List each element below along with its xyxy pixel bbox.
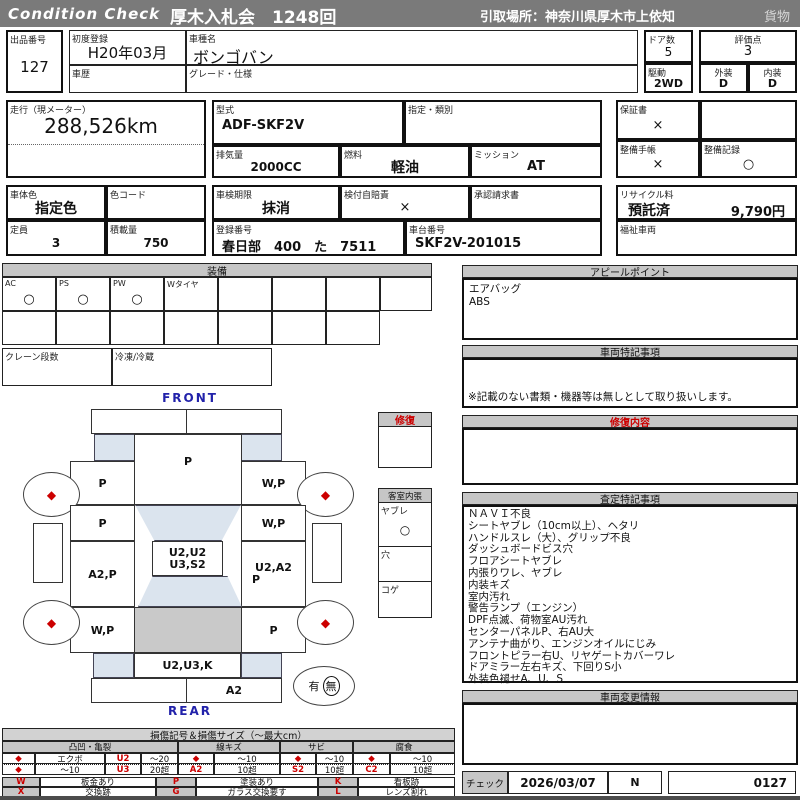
- pickup-location: 引取場所：神奈川県厚木市上依知: [480, 6, 675, 25]
- category-badge: 貨物: [764, 6, 790, 25]
- assessment-line: シートヤブレ（10cm以上）、ヘタリ: [468, 521, 792, 533]
- equipment-mark-ps: ○: [57, 289, 109, 310]
- maintenance-record-cell: 整備記録 ○: [700, 140, 797, 178]
- check-number-cell: 0127: [668, 771, 796, 794]
- cabin-burn-cell: コゲ: [379, 582, 431, 618]
- legend-code-u3: U3: [105, 764, 141, 775]
- diamond-icon: ◆: [2, 764, 35, 775]
- history-cell: 車歴: [69, 65, 186, 93]
- equipment-header: 装備: [2, 263, 432, 277]
- legend-code-u2: U2: [105, 753, 141, 764]
- equipment-cell-empty: [56, 311, 110, 345]
- repair-content-box: [462, 428, 798, 485]
- drive-type: 2WD: [646, 75, 691, 91]
- displacement-cell: 排気量 2000CC: [212, 145, 340, 178]
- score-cell: 評価点 3: [699, 30, 797, 63]
- equipment-mark-pw: ○: [111, 289, 163, 310]
- rear-label: REAR: [150, 704, 230, 718]
- wheel-mark-icon: ◆: [47, 488, 56, 502]
- equipment-cell-empty: [164, 311, 218, 345]
- registration-number: 春日部 400 た 7511: [222, 236, 376, 255]
- crane-cell: クレーン段数: [2, 348, 112, 386]
- transmission: AT: [472, 157, 600, 176]
- equipment-cell-empty: [2, 311, 56, 345]
- vehicle-notes-header: 車両特記事項: [462, 345, 798, 358]
- insurance-cell: 検付自賠責 ×: [340, 185, 470, 220]
- roof-panel: U2,U2 U3,S2: [152, 541, 223, 576]
- change-info-box: [462, 703, 798, 765]
- maintenance-book-cell: 整備手帳 ×: [616, 140, 700, 178]
- legend-group-dent: 凸凹・亀裂: [2, 741, 178, 753]
- legend-title: 損傷記号＆損傷サイズ（〜最大cm）: [2, 728, 455, 741]
- rear-left-wheel: ◆: [23, 600, 80, 645]
- approval-request-cell: 承認請求書: [470, 185, 602, 220]
- equipment-cell-wtire: Wタイヤ: [164, 277, 218, 311]
- interior-grade: D: [750, 75, 795, 91]
- cabin-lining-box: 客室内張 ヤブレ ○ 穴 コゲ: [378, 488, 432, 618]
- assessment-line: 内装キズ: [468, 580, 792, 592]
- equipment-cell-empty: [326, 277, 380, 311]
- body-color: 指定色: [8, 197, 104, 218]
- legend-cell: 10超: [316, 764, 353, 775]
- appeal-line: ABS: [469, 296, 791, 309]
- rear-right-panel: P: [241, 607, 306, 653]
- odometer-box: 走行（現メーター） 288,526km: [6, 100, 206, 178]
- rear-gate-panel: U2,U3,K: [134, 653, 241, 678]
- wheel-mark-icon: ◆: [47, 616, 56, 630]
- repair-box-header: 修復: [378, 412, 432, 427]
- legend-cell: 〜10: [214, 753, 280, 764]
- grade-cell: グレード・仕様: [186, 65, 638, 93]
- recycle-status: 預託済: [628, 200, 670, 220]
- hood-panel: P: [134, 434, 242, 505]
- fuel-type: 軽油: [342, 157, 468, 176]
- front-left-door: P: [70, 505, 135, 541]
- maintenance-record-mark: ○: [702, 152, 795, 176]
- equipment-mark-wtire: [165, 289, 217, 310]
- equipment-cell-ac: AC ○: [2, 277, 56, 311]
- front-right-fender: W,P: [241, 461, 306, 505]
- assessment-header: 査定特記事項: [462, 492, 798, 505]
- code-w: W: [2, 777, 40, 787]
- displacement: 2000CC: [214, 157, 338, 176]
- legend-cell: エクボ: [35, 753, 105, 764]
- equipment-cell-empty: [272, 311, 326, 345]
- model-code-cell: 型式 ADF-SKF2V: [212, 100, 404, 145]
- legend-group-rust: サビ: [280, 741, 353, 753]
- legend-cell: 10超: [390, 764, 455, 775]
- front-label: FRONT: [150, 391, 230, 405]
- fuel-cell: 燃料 軽油: [340, 145, 470, 178]
- side-step-left: [33, 523, 63, 583]
- model-code: ADF-SKF2V: [222, 118, 304, 133]
- wheel-mark-icon: ◆: [321, 616, 330, 630]
- recycle-fee-cell: リサイクル料 預託済 9,790円: [616, 185, 797, 220]
- code-k: K: [318, 777, 358, 787]
- front-left-fender: P: [70, 461, 135, 505]
- legend-cell: 〜10: [35, 764, 105, 775]
- diamond-icon: ◆: [353, 753, 390, 764]
- windshield: [134, 505, 242, 541]
- vehicle-notes-disclaimer: ※記載のない書類・機器等は無しとして取り扱いします。: [468, 389, 738, 404]
- load-capacity-cell: 積載量 750: [106, 220, 206, 256]
- front-bumper-right: [186, 409, 282, 434]
- front-bumper-left: [91, 409, 187, 434]
- assessment-line: センターパネルP、右AU大: [468, 627, 792, 639]
- cabin-hole-cell: 穴: [379, 547, 431, 582]
- seating-capacity: 3: [8, 232, 104, 254]
- legend-cell: 10超: [214, 764, 280, 775]
- first-registration-cell: 初度登録 H20年03月: [69, 30, 186, 65]
- equipment-cell-empty: [326, 311, 380, 345]
- cabin-tear-cell: ヤブレ ○: [379, 503, 431, 547]
- doc-blank-cell: [700, 100, 797, 140]
- assessment-line: アンテナ曲がり、エンジンオイルにじみ: [468, 639, 792, 651]
- equipment-cell-empty: [110, 311, 164, 345]
- exterior-cell: 外装 D: [699, 63, 748, 93]
- warranty-cell: 保証書 ×: [616, 100, 700, 140]
- spare-no-circled: 無: [323, 676, 340, 696]
- maintenance-book-mark: ×: [618, 152, 698, 176]
- insurance-mark: ×: [342, 197, 468, 218]
- rear-window: [138, 576, 242, 607]
- lot-number: 127: [8, 42, 61, 91]
- rear-bumper-right: A2: [186, 678, 282, 703]
- first-registration: H20年03月: [70, 41, 185, 64]
- legend-group-scratch: 線キズ: [178, 741, 280, 753]
- rear-left-panel: W,P: [70, 607, 135, 653]
- appeal-line: エアバッグ: [469, 283, 791, 296]
- change-info-header: 車両変更情報: [462, 690, 798, 703]
- inspection-expiry: 抹消: [214, 197, 338, 218]
- check-inspector-cell: N: [608, 771, 662, 794]
- drive-cell: 駆動 2WD: [644, 63, 693, 93]
- designation-cell: 指定・類別: [404, 100, 602, 145]
- inspection-expiry-cell: 車検期限 抹消: [212, 185, 340, 220]
- check-label-cell: チェック: [462, 771, 508, 794]
- load-capacity: 750: [108, 232, 204, 254]
- front-corner-left: [94, 434, 135, 461]
- title-bar: Condition Check 厚木入札会 1248回 引取場所：神奈川県厚木市…: [0, 0, 800, 27]
- side-step-right: [312, 523, 342, 583]
- model-name-cell: 車種名 ボンゴバン: [186, 30, 638, 65]
- legend-code-a2: A2: [178, 764, 214, 775]
- diamond-icon: ◆: [280, 753, 316, 764]
- front-corner-right: [241, 434, 282, 461]
- front-right-door: W,P: [241, 505, 306, 541]
- capacity-cell: 定員 3: [6, 220, 106, 256]
- welfare-vehicle-cell: 福祉車両: [616, 220, 797, 256]
- legend-code-c2: C2: [353, 764, 390, 775]
- equipment-cell-pw: PW ○: [110, 277, 164, 311]
- appeal-header: アピールポイント: [462, 265, 798, 278]
- lot-number-cell: 出品番号 127: [6, 30, 63, 93]
- bottom-divider: [0, 796, 800, 800]
- legend-code-s2: S2: [280, 764, 316, 775]
- equipment-cell-empty: [218, 311, 272, 345]
- doors-count: 5: [646, 42, 691, 61]
- recycle-fee: 9,790円: [731, 201, 785, 220]
- cargo-bed: [134, 607, 242, 653]
- fridge-cell: 冷凍/冷蔵: [112, 348, 272, 386]
- spare-tire-mark: 有 無: [293, 666, 355, 706]
- spare-yes-label: 有: [309, 678, 320, 694]
- body-color-cell: 車体色 指定色: [6, 185, 106, 220]
- vehicle-notes-box: ※記載のない書類・機器等は無しとして取り扱いします。: [462, 358, 798, 408]
- mid-right-panel: U2,A2 P: [241, 541, 306, 607]
- check-date-cell: 2026/03/07: [508, 771, 608, 794]
- cabin-tear-mark: ○: [379, 514, 431, 546]
- diamond-icon: ◆: [178, 753, 214, 764]
- rear-right-wheel: ◆: [297, 600, 354, 645]
- warranty-mark: ×: [618, 112, 698, 138]
- transmission-cell: ミッション AT: [470, 145, 602, 178]
- diamond-icon: ◆: [2, 753, 35, 764]
- tail-light-right: [241, 653, 282, 678]
- cabin-lining-header: 客室内張: [378, 488, 432, 503]
- chassis-number: SKF2V-201015: [415, 236, 521, 251]
- appeal-box: エアバッグ ABS: [462, 278, 798, 340]
- mid-left-panel: A2,P: [70, 541, 135, 607]
- wheel-mark-icon: ◆: [321, 488, 330, 502]
- assessment-line: 内張りワレ、ヤブレ: [468, 568, 792, 580]
- color-code-cell: 色コード: [106, 185, 206, 220]
- legend-cell: 〜10: [390, 753, 455, 764]
- auction-title: 厚木入札会 1248回: [170, 3, 336, 28]
- equipment-cell-empty: [272, 277, 326, 311]
- assessment-line: 外装色褪せA、U、S: [468, 674, 792, 686]
- equipment-cell-ps: PS ○: [56, 277, 110, 311]
- rear-bumper-left: [91, 678, 187, 703]
- doors-cell: ドア数 5: [644, 30, 693, 63]
- evaluation-score: 3: [701, 42, 795, 61]
- equipment-cell-empty: [218, 277, 272, 311]
- repair-content-header: 修復内容: [462, 415, 798, 428]
- odometer-value: 288,526km: [8, 114, 194, 138]
- tail-light-left: [93, 653, 134, 678]
- exterior-grade: D: [701, 75, 746, 91]
- chassis-number-cell: 車台番号 SKF2V-201015: [405, 220, 602, 256]
- assessment-box: ＮＡＶＩ不良 シートヤブレ（10cm以上）、ヘタリ ハンドルスレ（大）、グリップ…: [462, 505, 798, 683]
- legend-group-corrosion: 腐食: [353, 741, 455, 753]
- brand-logo: Condition Check: [8, 5, 160, 23]
- repair-box: 修復: [378, 412, 432, 468]
- interior-cell: 内装 D: [748, 63, 797, 93]
- auction-condition-sheet: Condition Check 厚木入札会 1248回 引取場所：神奈川県厚木市…: [0, 0, 800, 800]
- legend-cell: 〜10: [316, 753, 353, 764]
- legend-cell: 20超: [141, 764, 178, 775]
- registration-number-cell: 登録番号 春日部 400 た 7511: [212, 220, 405, 256]
- legend-cell: 〜20: [141, 753, 178, 764]
- equipment-cell-empty: [380, 277, 432, 311]
- equipment-mark-ac: ○: [3, 289, 55, 310]
- code-p: P: [156, 777, 196, 787]
